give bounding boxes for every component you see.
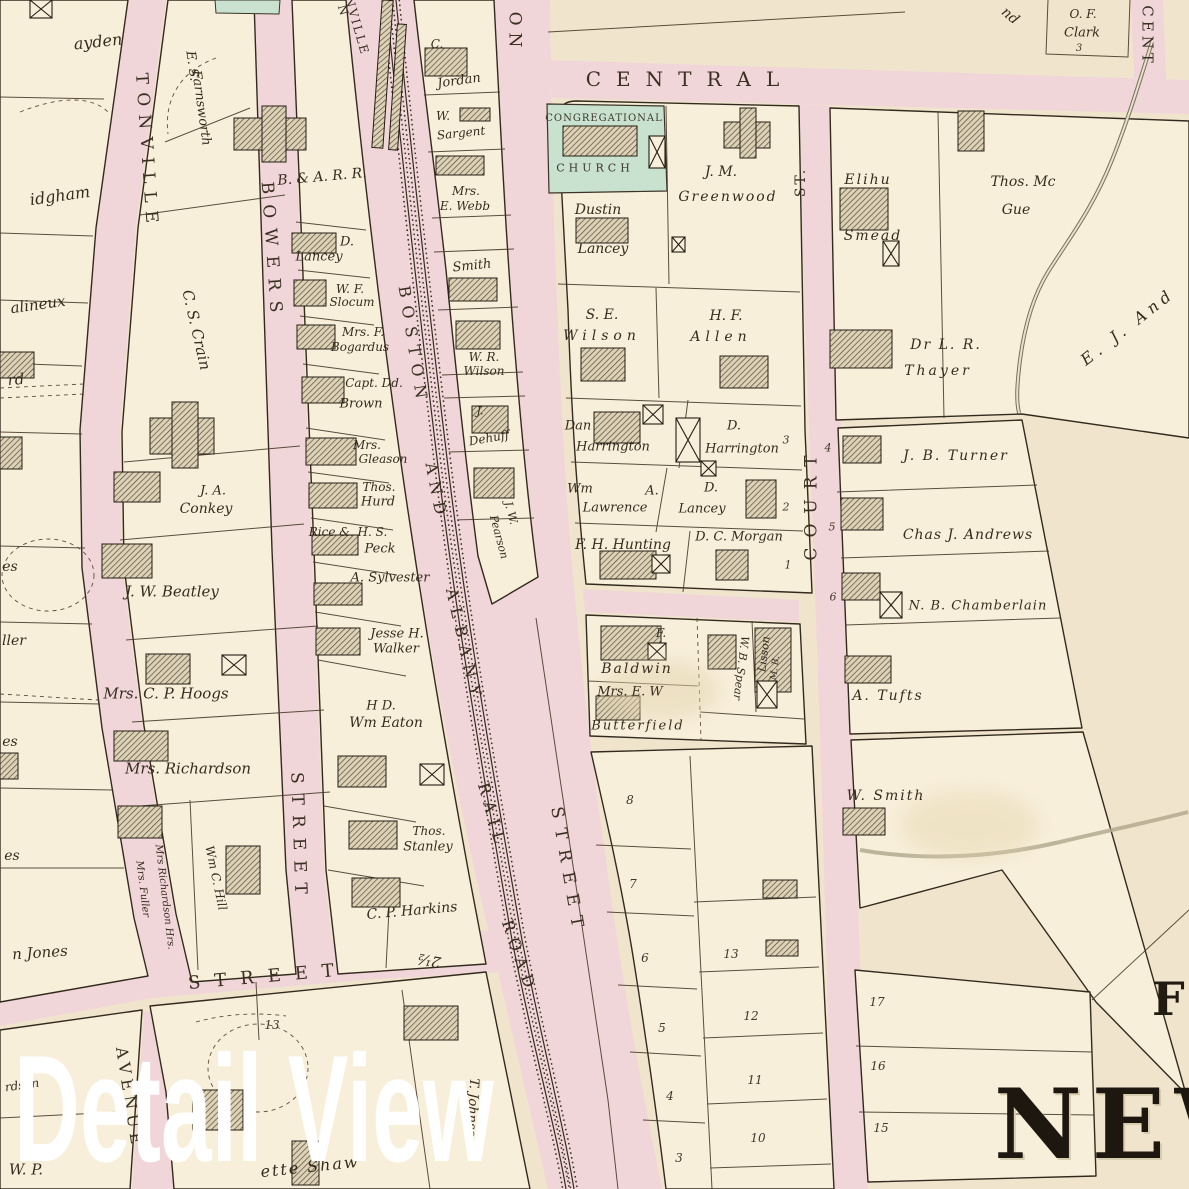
owner-dehuff-2: Dehuff xyxy=(468,429,510,448)
owner-brown-2: Brown xyxy=(339,398,382,411)
lot-6-court: 6 xyxy=(830,592,837,603)
owner-jordan-2: Jordan xyxy=(436,72,481,91)
rr-label-road: ROAD xyxy=(499,918,539,997)
owner-gleason-2: Gleason xyxy=(359,453,408,465)
central-street-label: CENTRAL xyxy=(586,69,795,89)
map-title-letter-fragment: F xyxy=(1152,972,1185,1026)
lot-3: 3 xyxy=(675,1152,683,1164)
owner-bogardus-1: Mrs. F. xyxy=(342,326,384,338)
on-street-label: ON xyxy=(506,12,523,55)
owner-frag-ller: ller xyxy=(2,634,26,648)
owner-d-lancey-3: D. xyxy=(704,482,718,495)
owner-crain: C. S. Crain xyxy=(179,288,212,371)
street-label-main: STREET xyxy=(547,806,587,939)
lot-5-court: 5 xyxy=(829,522,836,533)
rr-label-and: AND xyxy=(422,461,449,522)
map-canvas[interactable]: CENTRALONSTREETBOWERSSTREETTONVILLEAVENU… xyxy=(0,0,1189,1189)
owner-lawrence-2: Lawrence xyxy=(583,502,648,515)
owner-butterfield-1: Mrs. E. W xyxy=(597,686,663,699)
lot-6: 6 xyxy=(641,952,649,964)
owner-frag-es-3: es xyxy=(4,849,19,863)
owner-walker-2: Walker xyxy=(373,643,419,656)
owner-turner: J. B. Turner xyxy=(903,449,1009,463)
lot-4: 4 xyxy=(666,1090,674,1102)
owner-ej-and: E. J. And xyxy=(1078,286,1178,369)
owner-clark-2: Clark xyxy=(1064,27,1100,40)
owner-hunting: F. H. Hunting xyxy=(575,538,671,552)
lot-17: 17 xyxy=(869,996,884,1008)
lot-1-court: 1 xyxy=(785,560,792,571)
owner-walker-1: Jesse H. xyxy=(370,628,424,641)
owner-ba-rr: B. & A. R. R. xyxy=(277,166,367,188)
owner-tufts: A. Tufts xyxy=(852,689,923,703)
owner-hill: Wm C. Hill xyxy=(203,845,228,912)
owner-baldwin-1: F. xyxy=(656,627,666,639)
lot-10: 10 xyxy=(750,1132,765,1144)
owner-sargent-2: Sargent xyxy=(436,125,485,142)
owner-peck-2: Peck xyxy=(364,543,395,556)
lot-3-court: 3 xyxy=(783,435,790,446)
owner-slocum-2: Slocum xyxy=(329,296,374,308)
owner-smead-1: Elihu xyxy=(844,173,891,187)
owner-w-smith: W. Smith xyxy=(847,789,926,803)
owner-d-lancey-1: D. xyxy=(340,236,354,249)
owner-mcgue-2: Gue xyxy=(1002,203,1031,217)
owner-dustin-2: Lancey xyxy=(578,242,629,256)
map-title-fragment: NEW xyxy=(994,1068,1189,1181)
church-label-1: CONGREGATIONAL xyxy=(545,114,663,124)
owner-a-lancey-1: A. xyxy=(645,485,659,498)
map-labels-layer: CENTRALONSTREETBOWERSSTREETTONVILLEAVENU… xyxy=(0,0,1189,1189)
watermark-text: Detail View xyxy=(14,1022,494,1189)
lot-12: 12 xyxy=(743,1010,758,1022)
owner-conkey-2: Conkey xyxy=(180,502,233,516)
owner-greenwood-1: J. M. xyxy=(705,165,737,179)
lot-2-court: 2 xyxy=(783,502,790,513)
owner-dehuff-1: J. xyxy=(476,406,483,417)
owner-conkey-1: J. A. xyxy=(200,485,226,498)
owner-lisson-2: M. B. xyxy=(770,655,782,680)
owner-peck-1: Rice &. H. S. xyxy=(309,526,388,538)
note-2half: 2½ xyxy=(416,951,442,970)
owner-brown-1: Capt. Dd. xyxy=(345,377,403,389)
owner-spear: W. B. Spear xyxy=(732,635,751,700)
rr-label-albany: ALBANY xyxy=(443,587,485,706)
lot-15: 15 xyxy=(873,1122,888,1134)
owner-greenwood-2: Greenwood xyxy=(678,190,777,204)
owner-fuller: Mrs. Fuller xyxy=(134,860,151,918)
owner-frag-nd: nd xyxy=(999,5,1022,27)
owner-lawrence-1: Wm xyxy=(567,483,593,496)
owner-dan-harrington-1: Dan xyxy=(565,420,592,433)
court-st-label-2: ST. xyxy=(794,167,808,197)
owner-bogardus-2: Bogardus xyxy=(331,341,389,353)
owner-clark-1: O. F. xyxy=(1069,8,1096,20)
owner-chamberlain: N. B. Chamberlain xyxy=(909,600,1048,613)
street-label-bottom: STREET xyxy=(187,961,348,993)
lot-7: 7 xyxy=(629,878,637,890)
owner-allen-2: Allen xyxy=(690,330,751,344)
owner-wr-wilson-2: Wilson xyxy=(464,365,505,377)
owner-sargent-1: W. xyxy=(436,110,450,122)
lot-5: 5 xyxy=(658,1022,666,1034)
owner-gleason-1: Mrs. xyxy=(353,439,381,451)
lot-13: 13 xyxy=(723,948,738,960)
lot-3-clark: 3 xyxy=(1076,44,1082,54)
owner-idgham: idgham xyxy=(29,184,91,208)
court-street-label: COURT xyxy=(804,445,821,560)
owner-farnsworth-2: Farnsworth xyxy=(189,70,212,147)
owner-webb-2: E. Webb xyxy=(440,200,490,212)
owner-jordan-1: C. xyxy=(431,38,444,50)
owner-thayer-2: Thayer xyxy=(904,364,972,378)
owner-frag-es-1: es xyxy=(2,560,17,574)
owner-richardson-hrs: Mrs Richardson Hrs. xyxy=(153,844,176,950)
owner-d-harrington-2: Harrington xyxy=(705,443,779,456)
owner-hoogs: Mrs. C. P. Hoogs xyxy=(103,687,228,702)
owner-hayden: ayden xyxy=(73,32,123,53)
owner-eaton-1: H D. xyxy=(366,700,396,713)
owner-se-wilson-1: S. E. xyxy=(586,308,619,322)
owner-allen-1: H. F. xyxy=(709,309,742,323)
owner-hurd-1: Thos. xyxy=(363,481,396,493)
owner-a-lancey-2: Lancey xyxy=(678,503,725,516)
owner-dan-harrington-2: Harrington xyxy=(576,441,650,454)
owner-webb-1: Mrs. xyxy=(452,185,480,197)
owner-stanley-1: Thos. xyxy=(413,825,446,837)
owner-alineux: alineux xyxy=(10,294,67,317)
rr-label-rail: RAIL xyxy=(475,781,509,851)
owner-morgan: D. C. Morgan xyxy=(695,531,783,544)
owner-mcgue-1: Thos. Mc xyxy=(990,175,1055,189)
owner-rd: rd xyxy=(7,372,25,388)
owner-butterfield-2: Butterfield xyxy=(591,720,684,733)
owner-sylvester: A. Sylvester xyxy=(351,572,430,585)
owner-andrews: Chas J. Andrews xyxy=(903,528,1033,542)
lot-4-court: 4 xyxy=(825,443,832,454)
owner-thayer-1: Dr L. R. xyxy=(910,338,982,352)
owner-richardson: Mrs. Richardson xyxy=(125,762,251,777)
church-label-2: CHURCH xyxy=(556,163,634,174)
owner-dustin-1: Dustin xyxy=(575,203,622,217)
owner-se-wilson-2: Wilson xyxy=(563,329,641,343)
owner-hurd-2: Hurd xyxy=(361,496,395,509)
owner-d-lancey-2: Lancey xyxy=(295,251,342,264)
owner-harkins: C. P. Harkins xyxy=(366,900,458,922)
owner-smead-2: Smead xyxy=(844,229,902,243)
owner-beatley: J. W. Beatley xyxy=(125,585,219,600)
owner-baldwin-2: Baldwin xyxy=(601,662,673,676)
lot-11: 11 xyxy=(747,1074,762,1086)
owner-wr-wilson-1: W. R. xyxy=(469,351,500,363)
owner-stanley-2: Stanley xyxy=(403,841,452,854)
bowers-street-label-2: STREET xyxy=(287,772,309,904)
lot-8: 8 xyxy=(626,794,634,806)
owner-lisson-1: Lisson xyxy=(756,636,771,673)
tonville-street-label: TONVILLE xyxy=(132,73,160,232)
owner-jones: n Jones xyxy=(12,944,69,963)
owner-eaton-2: Wm Eaton xyxy=(349,716,423,730)
owner-pearson-1: J. W. xyxy=(503,500,520,525)
owner-frag-es-2: es xyxy=(2,735,17,749)
centre-street-label: CENT xyxy=(1140,5,1155,67)
owner-slocum-1: W. F. xyxy=(336,283,364,295)
bowers-street-label: BOWERS xyxy=(258,181,285,323)
owner-d-harrington-1: D. xyxy=(727,420,741,433)
owner-smith-rr: Smith xyxy=(452,257,492,274)
lot-16: 16 xyxy=(870,1060,885,1072)
